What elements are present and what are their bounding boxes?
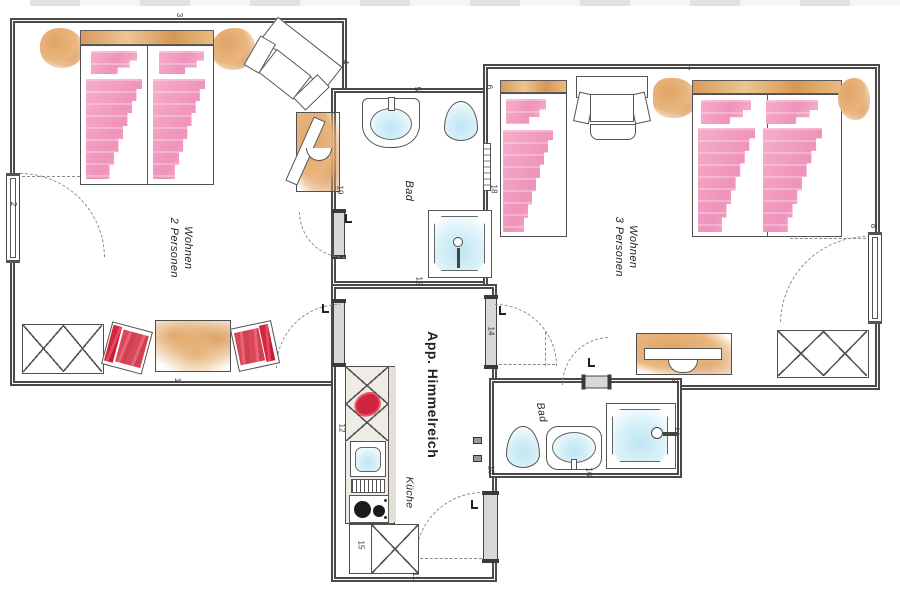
- shower-head: [651, 427, 663, 439]
- faucet: [388, 97, 395, 111]
- marker-11: 11: [411, 572, 419, 580]
- kitchen-sink: [350, 441, 386, 477]
- marker-8: 8: [869, 224, 877, 228]
- marker-3: 3: [175, 13, 183, 17]
- marker-6: 6: [485, 85, 493, 89]
- chair-seat: [115, 330, 149, 369]
- bed-headboard: [692, 80, 842, 94]
- room-label-line2: 2 Personen: [166, 213, 180, 283]
- burner-knob: [384, 516, 387, 519]
- wardrobe-door: [23, 325, 64, 372]
- faucet: [571, 459, 577, 470]
- window-pane: [872, 237, 878, 319]
- side-table: [590, 124, 636, 140]
- shower-drain: [453, 237, 463, 247]
- sink-basin: [355, 447, 381, 472]
- marker-13: 13: [414, 277, 422, 286]
- marker-18: 18: [489, 185, 497, 194]
- marker-14: 14: [486, 327, 494, 336]
- room-label-line2: 3 Personen: [611, 207, 625, 287]
- washbasin-bowl: [370, 108, 412, 140]
- marker-10: 10: [486, 466, 494, 475]
- window-pane: [10, 178, 16, 258]
- room-label-line1: Wohnen: [180, 213, 194, 283]
- chair: [230, 320, 280, 372]
- window-right: [868, 232, 882, 324]
- room-label-bad-main: Bad: [401, 176, 415, 206]
- door-handle: [588, 358, 595, 367]
- room-label-wohnen3: Wohnen 3 Personen: [611, 207, 639, 287]
- burner-knob: [384, 499, 387, 502]
- door-entrance: [483, 492, 498, 562]
- washbasin: [362, 98, 420, 148]
- kitchen-counter: [345, 366, 395, 524]
- wardrobe: [22, 324, 104, 374]
- apartment-title: App. Himmelreich: [423, 325, 441, 465]
- marker-1: 1: [173, 378, 181, 382]
- counter-rail: [388, 367, 396, 522]
- marker-16: 16: [584, 468, 592, 477]
- armchair-seat: [590, 94, 634, 122]
- burner: [354, 501, 371, 518]
- window-left: [6, 173, 20, 263]
- wardrobe: [777, 330, 869, 378]
- window-right-swing-chord: [790, 238, 866, 239]
- nightstand: [838, 78, 870, 120]
- dining-table: [155, 320, 231, 372]
- marker-9: 9: [670, 379, 678, 383]
- wardrobe-door: [63, 325, 102, 372]
- door-swing-chord: [545, 332, 546, 366]
- marker-4: 4: [341, 60, 349, 64]
- washbasin: [546, 426, 602, 470]
- shower-pipe: [457, 248, 460, 268]
- room-label-wohnen2: Wohnen 2 Personen: [166, 213, 194, 283]
- marker-19: 19: [335, 186, 343, 195]
- marker-2: 2: [9, 202, 17, 206]
- marker-7: 7: [682, 66, 690, 70]
- floor-plan: Wohnen 2 Personen Bad Wohnen: [0, 0, 900, 600]
- bed-headboard: [500, 80, 567, 93]
- marker-17: 17: [673, 427, 681, 436]
- tv: [644, 348, 722, 360]
- kitchen-table: [371, 524, 419, 574]
- nightstand: [40, 28, 84, 68]
- marker-12: 12: [337, 424, 345, 433]
- burner: [373, 505, 385, 517]
- wardrobe-door: [823, 331, 867, 376]
- wall-hook: [473, 437, 482, 444]
- stove: [349, 495, 389, 523]
- door-handle: [471, 500, 478, 509]
- scan-edge-artifact: [30, 0, 900, 6]
- marker-15: 15: [356, 541, 364, 550]
- wardrobe-door: [778, 331, 824, 376]
- bed-headboard: [80, 30, 214, 45]
- door-swing-chord: [499, 364, 555, 365]
- dish-rack: [351, 479, 385, 493]
- bed-divider: [147, 46, 148, 184]
- shower: [606, 403, 676, 469]
- door-handle: [322, 304, 329, 313]
- door-handle: [499, 306, 506, 315]
- rug: [653, 78, 697, 118]
- room-label-kueche: Küche: [402, 468, 415, 518]
- marker-5: 5: [413, 87, 421, 91]
- room-label-line1: Wohnen: [625, 207, 639, 287]
- shower: [428, 210, 492, 278]
- wall-hook: [473, 455, 482, 462]
- door-swing-chord: [420, 558, 482, 559]
- door-handle: [345, 214, 352, 223]
- armchair: [576, 76, 648, 126]
